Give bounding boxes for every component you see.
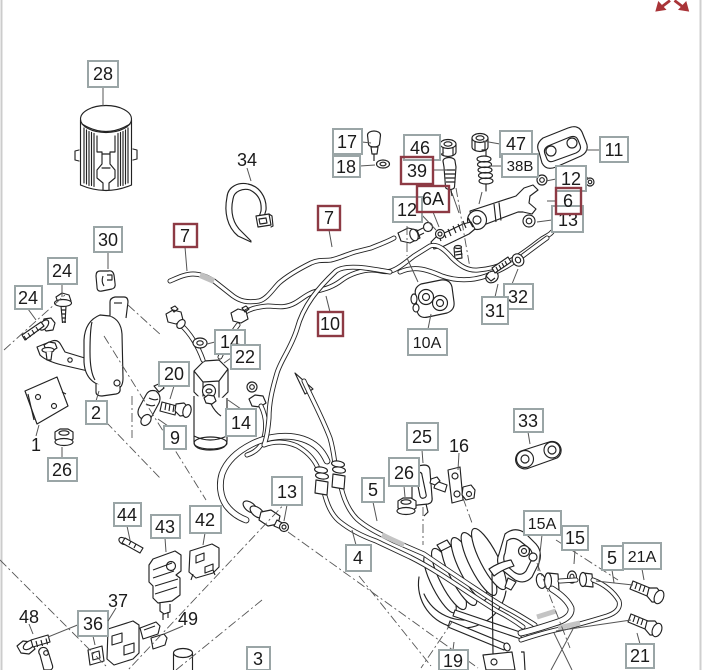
svg-text:26: 26: [394, 463, 414, 483]
svg-text:47: 47: [506, 134, 526, 154]
svg-text:37: 37: [108, 591, 128, 611]
svg-text:16: 16: [449, 436, 469, 456]
svg-text:43: 43: [155, 517, 175, 537]
svg-text:30: 30: [98, 230, 118, 250]
svg-text:39: 39: [407, 161, 427, 181]
svg-text:28: 28: [93, 64, 113, 84]
svg-text:36: 36: [83, 614, 103, 634]
svg-text:18: 18: [336, 157, 356, 177]
svg-text:15A: 15A: [528, 516, 557, 533]
svg-text:46: 46: [410, 138, 430, 158]
svg-text:42: 42: [195, 510, 215, 530]
svg-text:6A: 6A: [422, 189, 444, 209]
svg-text:20: 20: [164, 364, 184, 384]
svg-text:14: 14: [231, 413, 251, 433]
svg-text:26: 26: [52, 460, 72, 480]
svg-text:5: 5: [607, 548, 617, 568]
svg-text:34: 34: [237, 150, 257, 170]
svg-text:49: 49: [178, 609, 198, 629]
svg-text:48: 48: [19, 607, 39, 627]
svg-text:10: 10: [320, 314, 340, 334]
svg-text:7: 7: [180, 226, 190, 246]
svg-text:4: 4: [353, 548, 363, 568]
svg-text:38B: 38B: [507, 158, 534, 175]
svg-text:32: 32: [508, 287, 528, 307]
svg-text:24: 24: [52, 261, 72, 281]
svg-text:21: 21: [630, 646, 650, 666]
svg-text:1: 1: [31, 435, 41, 455]
svg-text:17: 17: [337, 132, 357, 152]
svg-text:6: 6: [563, 191, 573, 211]
svg-text:15: 15: [565, 528, 585, 548]
svg-text:11: 11: [605, 140, 624, 160]
svg-text:12: 12: [561, 169, 581, 189]
svg-text:5: 5: [368, 480, 378, 500]
svg-text:25: 25: [412, 427, 432, 447]
svg-text:33: 33: [518, 411, 538, 431]
svg-text:19: 19: [443, 651, 463, 670]
svg-text:9: 9: [170, 428, 180, 448]
svg-text:31: 31: [485, 301, 505, 321]
svg-text:3: 3: [253, 649, 263, 669]
svg-text:10A: 10A: [413, 335, 442, 352]
svg-text:22: 22: [235, 347, 255, 367]
svg-text:21A: 21A: [628, 549, 657, 566]
svg-text:13: 13: [277, 482, 297, 502]
svg-text:2: 2: [91, 403, 101, 423]
svg-text:24: 24: [18, 288, 38, 308]
svg-text:12: 12: [397, 200, 417, 220]
svg-text:44: 44: [117, 505, 137, 525]
svg-text:7: 7: [324, 208, 334, 228]
